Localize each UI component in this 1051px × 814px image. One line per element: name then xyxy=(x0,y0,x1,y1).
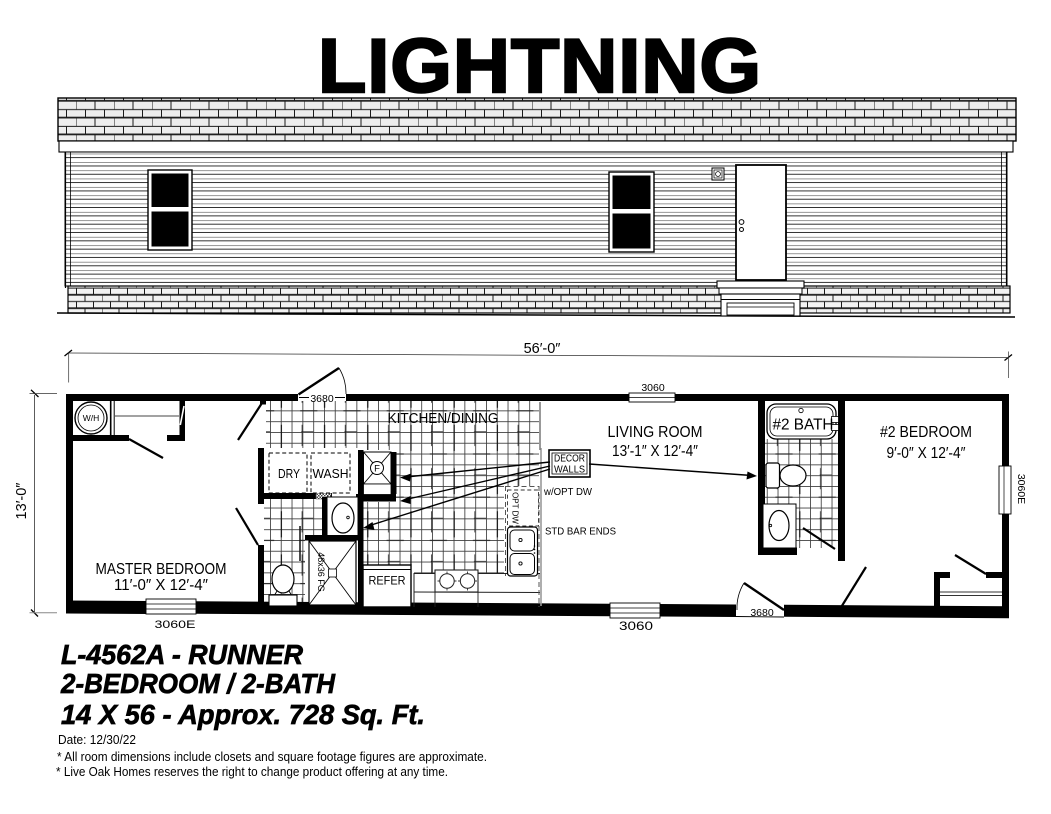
svg-text:11′-0″ X 12′-4″: 11′-0″ X 12′-4″ xyxy=(114,577,208,594)
svg-text:3060E: 3060E xyxy=(155,619,196,631)
svg-text:KITCHEN/DINING: KITCHEN/DINING xyxy=(388,410,499,427)
svg-text:48x36 FG: 48x36 FG xyxy=(316,552,326,592)
svg-text:MASTER BEDROOM: MASTER BEDROOM xyxy=(96,561,227,578)
svg-text:2-BEDROOM / 2-BATH: 2-BEDROOM / 2-BATH xyxy=(60,668,336,699)
svg-text:Date: 12/30/22: Date: 12/30/22 xyxy=(58,733,136,747)
svg-text:W/H: W/H xyxy=(83,413,100,423)
svg-text:3060: 3060 xyxy=(619,621,653,633)
svg-text:STD BAR ENDS: STD BAR ENDS xyxy=(545,526,616,538)
svg-text:WASH: WASH xyxy=(313,467,349,481)
svg-text:#2 BEDROOM: #2 BEDROOM xyxy=(880,424,972,441)
svg-text:WALLS: WALLS xyxy=(554,465,585,476)
svg-text:DRY: DRY xyxy=(278,467,301,481)
svg-text:14 X 56 - Approx. 728 Sq. Ft.: 14 X 56 - Approx. 728 Sq. Ft. xyxy=(61,699,425,730)
svg-text:DECOR: DECOR xyxy=(554,454,585,465)
svg-text:13′-1″ X 12′-4″: 13′-1″ X 12′-4″ xyxy=(612,443,698,460)
svg-text:REFER: REFER xyxy=(369,574,406,588)
svg-text:3680: 3680 xyxy=(310,393,334,405)
svg-text:* All room dimensions include: * All room dimensions include closets an… xyxy=(57,749,487,764)
svg-text:#2 BATH: #2 BATH xyxy=(773,417,834,434)
svg-text:F: F xyxy=(374,464,380,475)
svg-text:* Live Oak Homes reserves the: * Live Oak Homes reserves the right to c… xyxy=(56,764,448,779)
svg-text:LIGHTNING: LIGHTNING xyxy=(318,24,762,109)
svg-text:3060E: 3060E xyxy=(1015,474,1027,504)
svg-text:w/OPT DW: w/OPT DW xyxy=(543,486,592,498)
svg-text:OPT DW: OPT DW xyxy=(511,492,520,524)
svg-text:9′-0″ X 12′-4″: 9′-0″ X 12′-4″ xyxy=(887,445,966,462)
svg-text:3060: 3060 xyxy=(641,382,665,394)
svg-text:56′-0″: 56′-0″ xyxy=(524,341,561,357)
svg-text:3680: 3680 xyxy=(750,607,774,619)
svg-text:13′-0″: 13′-0″ xyxy=(14,483,30,520)
svg-text:LIVING ROOM: LIVING ROOM xyxy=(608,424,703,441)
svg-text:L-4562A - RUNNER: L-4562A - RUNNER xyxy=(61,639,304,670)
